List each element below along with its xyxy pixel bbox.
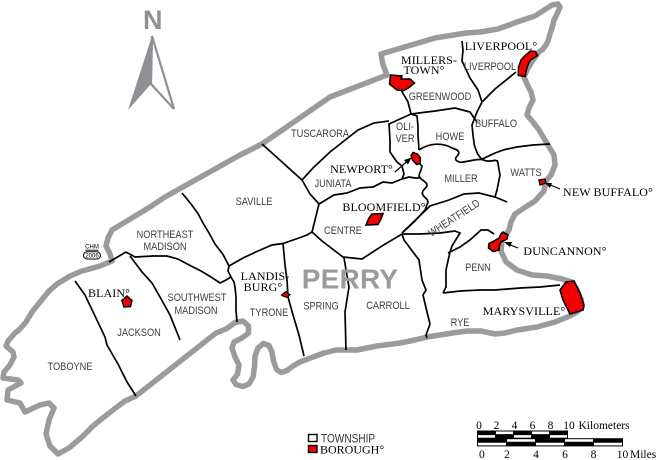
svg-text:SPRING: SPRING	[303, 301, 338, 313]
svg-text:MADISON: MADISON	[174, 305, 217, 317]
svg-text:Kilometers: Kilometers	[579, 420, 631, 432]
svg-text:GREENWOOD: GREENWOOD	[409, 91, 472, 103]
svg-text:DUNCANNON°: DUNCANNON°	[523, 244, 606, 258]
svg-text:TUSCARORA: TUSCARORA	[291, 128, 349, 140]
svg-text:MARYSVILLE°: MARYSVILLE°	[483, 304, 566, 318]
svg-text:PENN: PENN	[465, 262, 491, 274]
svg-text:TOBOYNE: TOBOYNE	[48, 361, 93, 373]
svg-text:6: 6	[530, 420, 536, 432]
svg-text:Miles: Miles	[630, 449, 657, 460]
svg-text:MILLER: MILLER	[444, 173, 477, 185]
svg-text:4: 4	[512, 420, 518, 432]
svg-text:2: 2	[494, 420, 500, 432]
svg-text:10: 10	[617, 449, 629, 460]
svg-text:LIVERPOOL°: LIVERPOOL°	[465, 39, 538, 53]
svg-text:VER: VER	[396, 133, 415, 145]
svg-text:MADISON: MADISON	[143, 241, 186, 253]
svg-text:CARROLL: CARROLL	[366, 300, 410, 312]
svg-text:JACKSON: JACKSON	[117, 327, 161, 339]
svg-text:2: 2	[504, 449, 510, 460]
svg-text:HOWE: HOWE	[436, 131, 465, 143]
svg-text:TYRONE: TYRONE	[250, 307, 289, 319]
svg-text:CENTRE: CENTRE	[324, 225, 362, 237]
svg-text:JUNIATA: JUNIATA	[314, 178, 351, 190]
svg-text:4: 4	[533, 449, 539, 460]
svg-text:RYE: RYE	[451, 317, 470, 329]
svg-text:BOROUGH°: BOROUGH°	[320, 443, 384, 457]
svg-text:LIVERPOOL: LIVERPOOL	[464, 61, 517, 73]
svg-text:6: 6	[562, 449, 568, 460]
svg-text:SOUTHWEST: SOUTHWEST	[168, 292, 227, 304]
svg-text:BLAIN°: BLAIN°	[88, 286, 130, 300]
svg-text:SAVILLE: SAVILLE	[236, 196, 273, 208]
svg-text:TOWN°: TOWN°	[403, 63, 444, 77]
svg-text:NEW BUFFALO°: NEW BUFFALO°	[563, 185, 653, 199]
svg-text:WATTS: WATTS	[510, 167, 541, 179]
svg-text:BLOOMFIELD°: BLOOMFIELD°	[342, 200, 425, 214]
svg-text:8: 8	[548, 420, 554, 432]
svg-text:OLI-: OLI-	[396, 121, 414, 133]
svg-text:BUFFALO: BUFFALO	[475, 118, 517, 130]
svg-text:2006: 2006	[85, 254, 99, 260]
svg-text:10: 10	[563, 420, 575, 432]
svg-text:BURG°: BURG°	[244, 280, 283, 294]
svg-text:N: N	[143, 5, 163, 35]
svg-text:NEWPORT°: NEWPORT°	[330, 162, 393, 176]
svg-text:NORTHEAST: NORTHEAST	[137, 229, 194, 241]
svg-text:0: 0	[479, 449, 485, 460]
svg-text:PERRY: PERRY	[302, 264, 399, 295]
svg-text:8: 8	[591, 449, 597, 460]
svg-text:0: 0	[476, 420, 482, 432]
